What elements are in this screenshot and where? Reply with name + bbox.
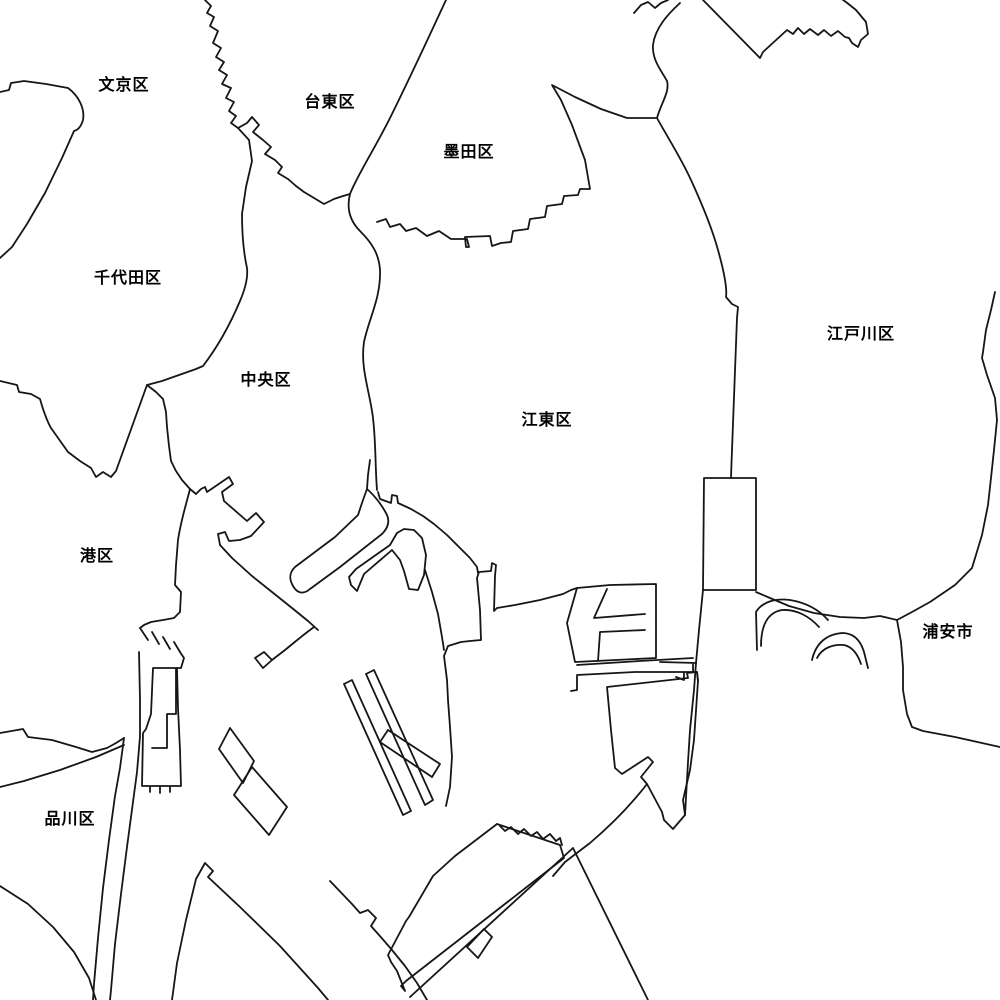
north-edge-notch (634, 0, 668, 13)
oi-wharf-triangle (172, 863, 328, 1000)
kasai-coastline (756, 592, 897, 620)
bunkyo-west-boundary (0, 81, 83, 258)
sumida-northeast-border (703, 0, 868, 58)
harumi-hammer-wharf (349, 529, 426, 591)
aomi-island-edges (410, 848, 648, 1000)
yumenoshima-trapezoid (553, 672, 698, 876)
shinonome-canal-lines (571, 658, 698, 691)
kasai-bird-sanctuary-arcs (756, 600, 868, 669)
map-line-art (0, 0, 1000, 1000)
koto-east-landfill-rect (703, 478, 756, 590)
ward-boundaries-north (0, 0, 868, 490)
shibaura-wharf-block (142, 652, 184, 793)
sumida-mouth-east-bank (378, 492, 478, 573)
toyosu-market-polygon (567, 584, 656, 662)
kachidoki-south-piers (219, 728, 287, 835)
pier-tick-marks (140, 628, 180, 652)
tsukishima-southwest-shore (220, 545, 318, 630)
tokyo-ward-map: 文京区台東区墨田区千代田区中央区江東区江戸川区港区浦安市品川区 (0, 0, 1000, 1000)
arakawa-river-boundary (653, 3, 738, 478)
edogawa-urayasu-river (897, 292, 997, 620)
shinagawa-coast (0, 886, 96, 1000)
ward-boundaries-east (703, 292, 1000, 747)
chuo-west-boundary (147, 385, 190, 489)
harumi-pier (290, 460, 388, 593)
tennozu-canal-strip (93, 652, 140, 1000)
sumida-river-boundary (349, 0, 446, 490)
kanda-river-border (238, 117, 350, 204)
koto-north-boundary (377, 85, 656, 247)
konan-coast (0, 729, 124, 752)
harbor-and-islands (0, 460, 703, 1000)
odaiba-island (388, 824, 564, 991)
urayasu-coastline (897, 620, 1000, 747)
minato-shinagawa-border (0, 745, 124, 787)
chiyoda-outline (0, 128, 252, 477)
jonanjima-shore (330, 881, 427, 1000)
bunkyo-taito-jagged-border (205, 0, 238, 128)
toyosu-coast-and-finger (425, 563, 577, 806)
minato-coastline (140, 489, 190, 628)
tsukishima-hook-inlet (190, 477, 264, 545)
kachidoki-tip (255, 627, 314, 668)
ariake-pier-bars (344, 670, 440, 815)
